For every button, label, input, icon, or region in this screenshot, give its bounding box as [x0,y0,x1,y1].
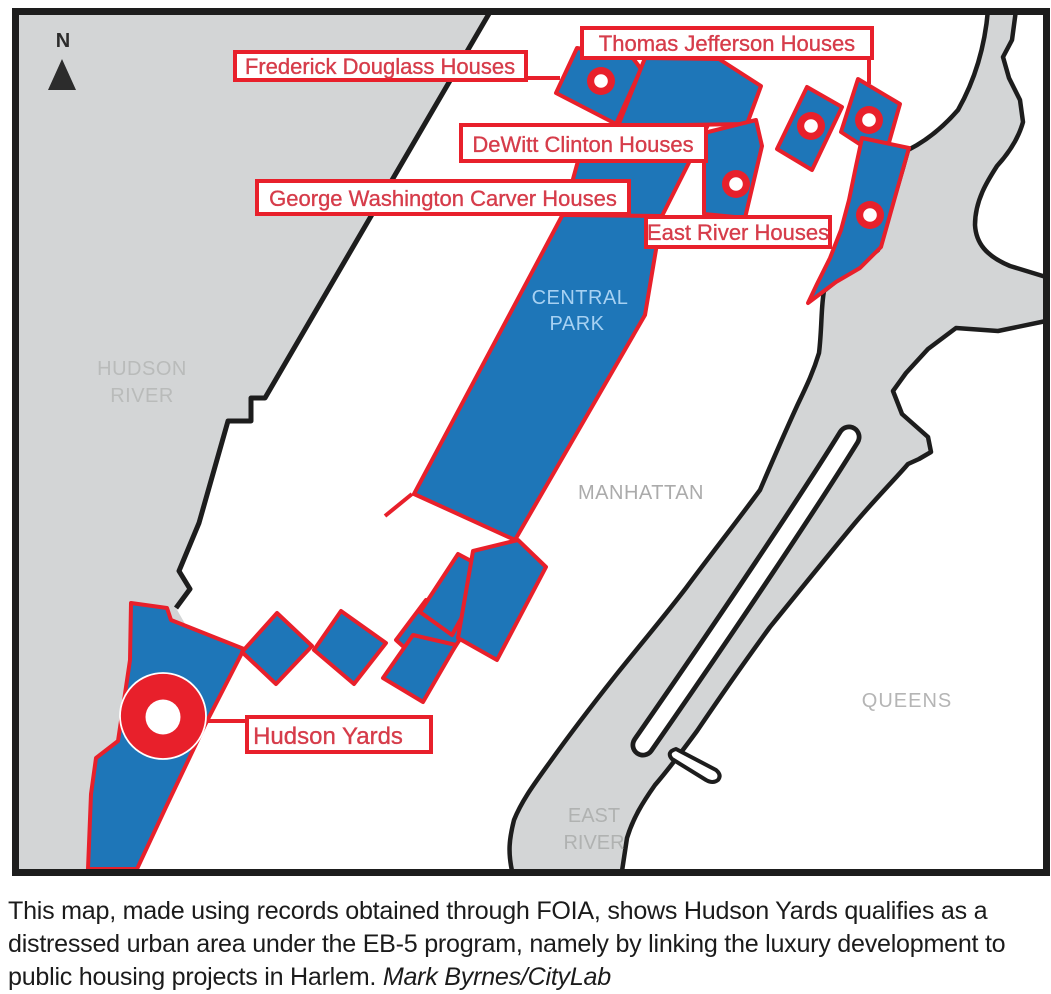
svg-text:QUEENS: QUEENS [862,690,952,712]
svg-text:PARK: PARK [550,313,605,335]
svg-text:RIVER: RIVER [110,385,174,407]
svg-text:Thomas Jefferson Houses: Thomas Jefferson Houses [599,31,855,56]
svg-text:HUDSON: HUDSON [97,358,187,380]
svg-text:Hudson Yards: Hudson Yards [253,723,403,750]
svg-text:DeWitt Clinton Houses: DeWitt Clinton Houses [472,132,693,157]
svg-text:EAST: EAST [568,805,620,827]
svg-text:CENTRAL: CENTRAL [532,287,629,309]
svg-text:George Washington Carver House: George Washington Carver Houses [269,186,617,211]
svg-text:East River Houses: East River Houses [647,220,829,245]
svg-text:N: N [56,30,70,52]
svg-text:MANHATTAN: MANHATTAN [578,482,704,504]
svg-text:RIVER: RIVER [563,832,624,854]
svg-text:Frederick Douglass Houses: Frederick Douglass Houses [245,54,515,79]
